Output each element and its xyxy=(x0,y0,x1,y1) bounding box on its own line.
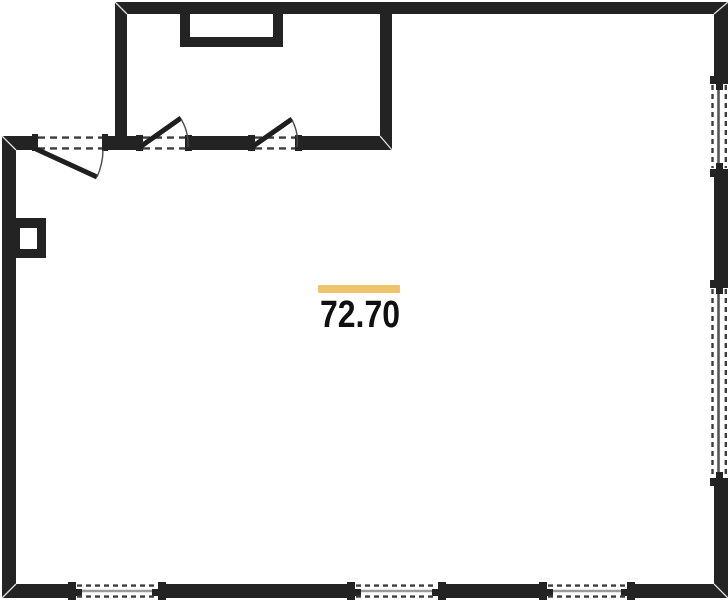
bottom-wall-window-2 xyxy=(356,586,437,597)
door-leaf xyxy=(252,119,292,147)
floor-plan: 72.70 xyxy=(0,0,728,600)
upper-room-door-left xyxy=(140,118,188,148)
upper-room-door-right xyxy=(252,119,297,148)
top-wall-niche xyxy=(180,14,283,47)
area-label-group: 72.70 xyxy=(318,285,400,336)
wall-right-3 xyxy=(714,478,728,598)
entrance-door-leaf xyxy=(36,149,97,177)
area-accent-bar xyxy=(318,285,400,293)
wall-bottom-4 xyxy=(627,584,728,598)
wall-top xyxy=(115,2,728,14)
wall-bottom-2 xyxy=(158,584,355,598)
wall-pier-2 xyxy=(185,136,255,150)
wall-pier-3 xyxy=(295,136,392,150)
wall-upper-room-right xyxy=(380,2,392,150)
floor-plan-canvas: 72.70 xyxy=(0,0,728,600)
right-wall-window-2 xyxy=(713,289,726,477)
door-leaf xyxy=(140,118,181,147)
left-wall-shaft xyxy=(11,218,46,258)
right-wall-window-1 xyxy=(713,85,726,168)
wall-right-1 xyxy=(714,2,728,84)
bottom-wall-window-3 xyxy=(548,586,626,597)
entrance-door xyxy=(36,138,103,177)
wall-upper-room-left xyxy=(115,2,127,150)
entrance-door-swing-arc xyxy=(97,150,103,177)
wall-bottom-3 xyxy=(438,584,547,598)
area-label: 72.70 xyxy=(320,294,400,336)
bottom-wall-window-1 xyxy=(77,586,157,597)
window-caps xyxy=(68,76,728,600)
wall-left xyxy=(2,136,16,598)
wall-right-2 xyxy=(714,169,728,288)
